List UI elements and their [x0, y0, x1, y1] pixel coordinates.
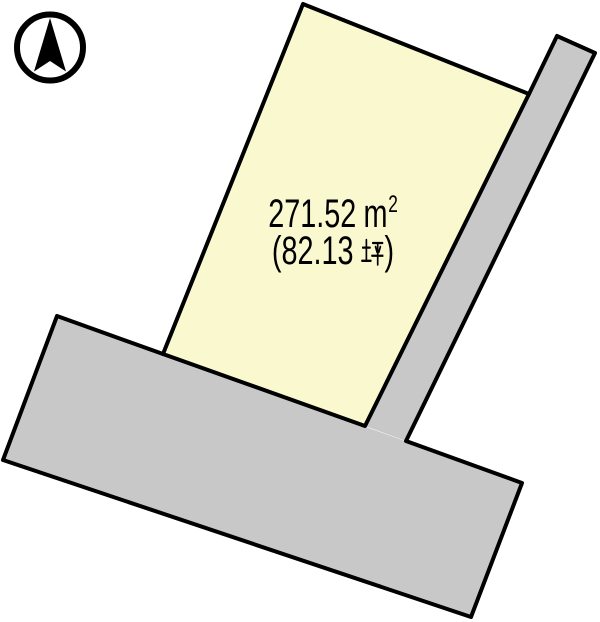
parcel-area-label: 271.52m2 (82.13): [225, 196, 441, 270]
north-arrow-icon: [34, 18, 66, 72]
parcel-area-tsubo: (82.13): [225, 233, 441, 270]
tsubo-close-paren: ): [385, 229, 395, 273]
tsubo-open-paren: (: [272, 229, 282, 273]
plot-drawing: [0, 0, 600, 622]
land-plot-diagram: 271.52m2 (82.13): [0, 0, 600, 622]
north-compass-icon: [17, 15, 83, 81]
area-tsubo-value: 82.13: [281, 229, 353, 273]
area-m2-unit-exponent: 2: [388, 191, 398, 218]
parcel-area-m2: 271.52m2: [225, 196, 441, 233]
tsubo-kanji-icon: [361, 236, 383, 267]
